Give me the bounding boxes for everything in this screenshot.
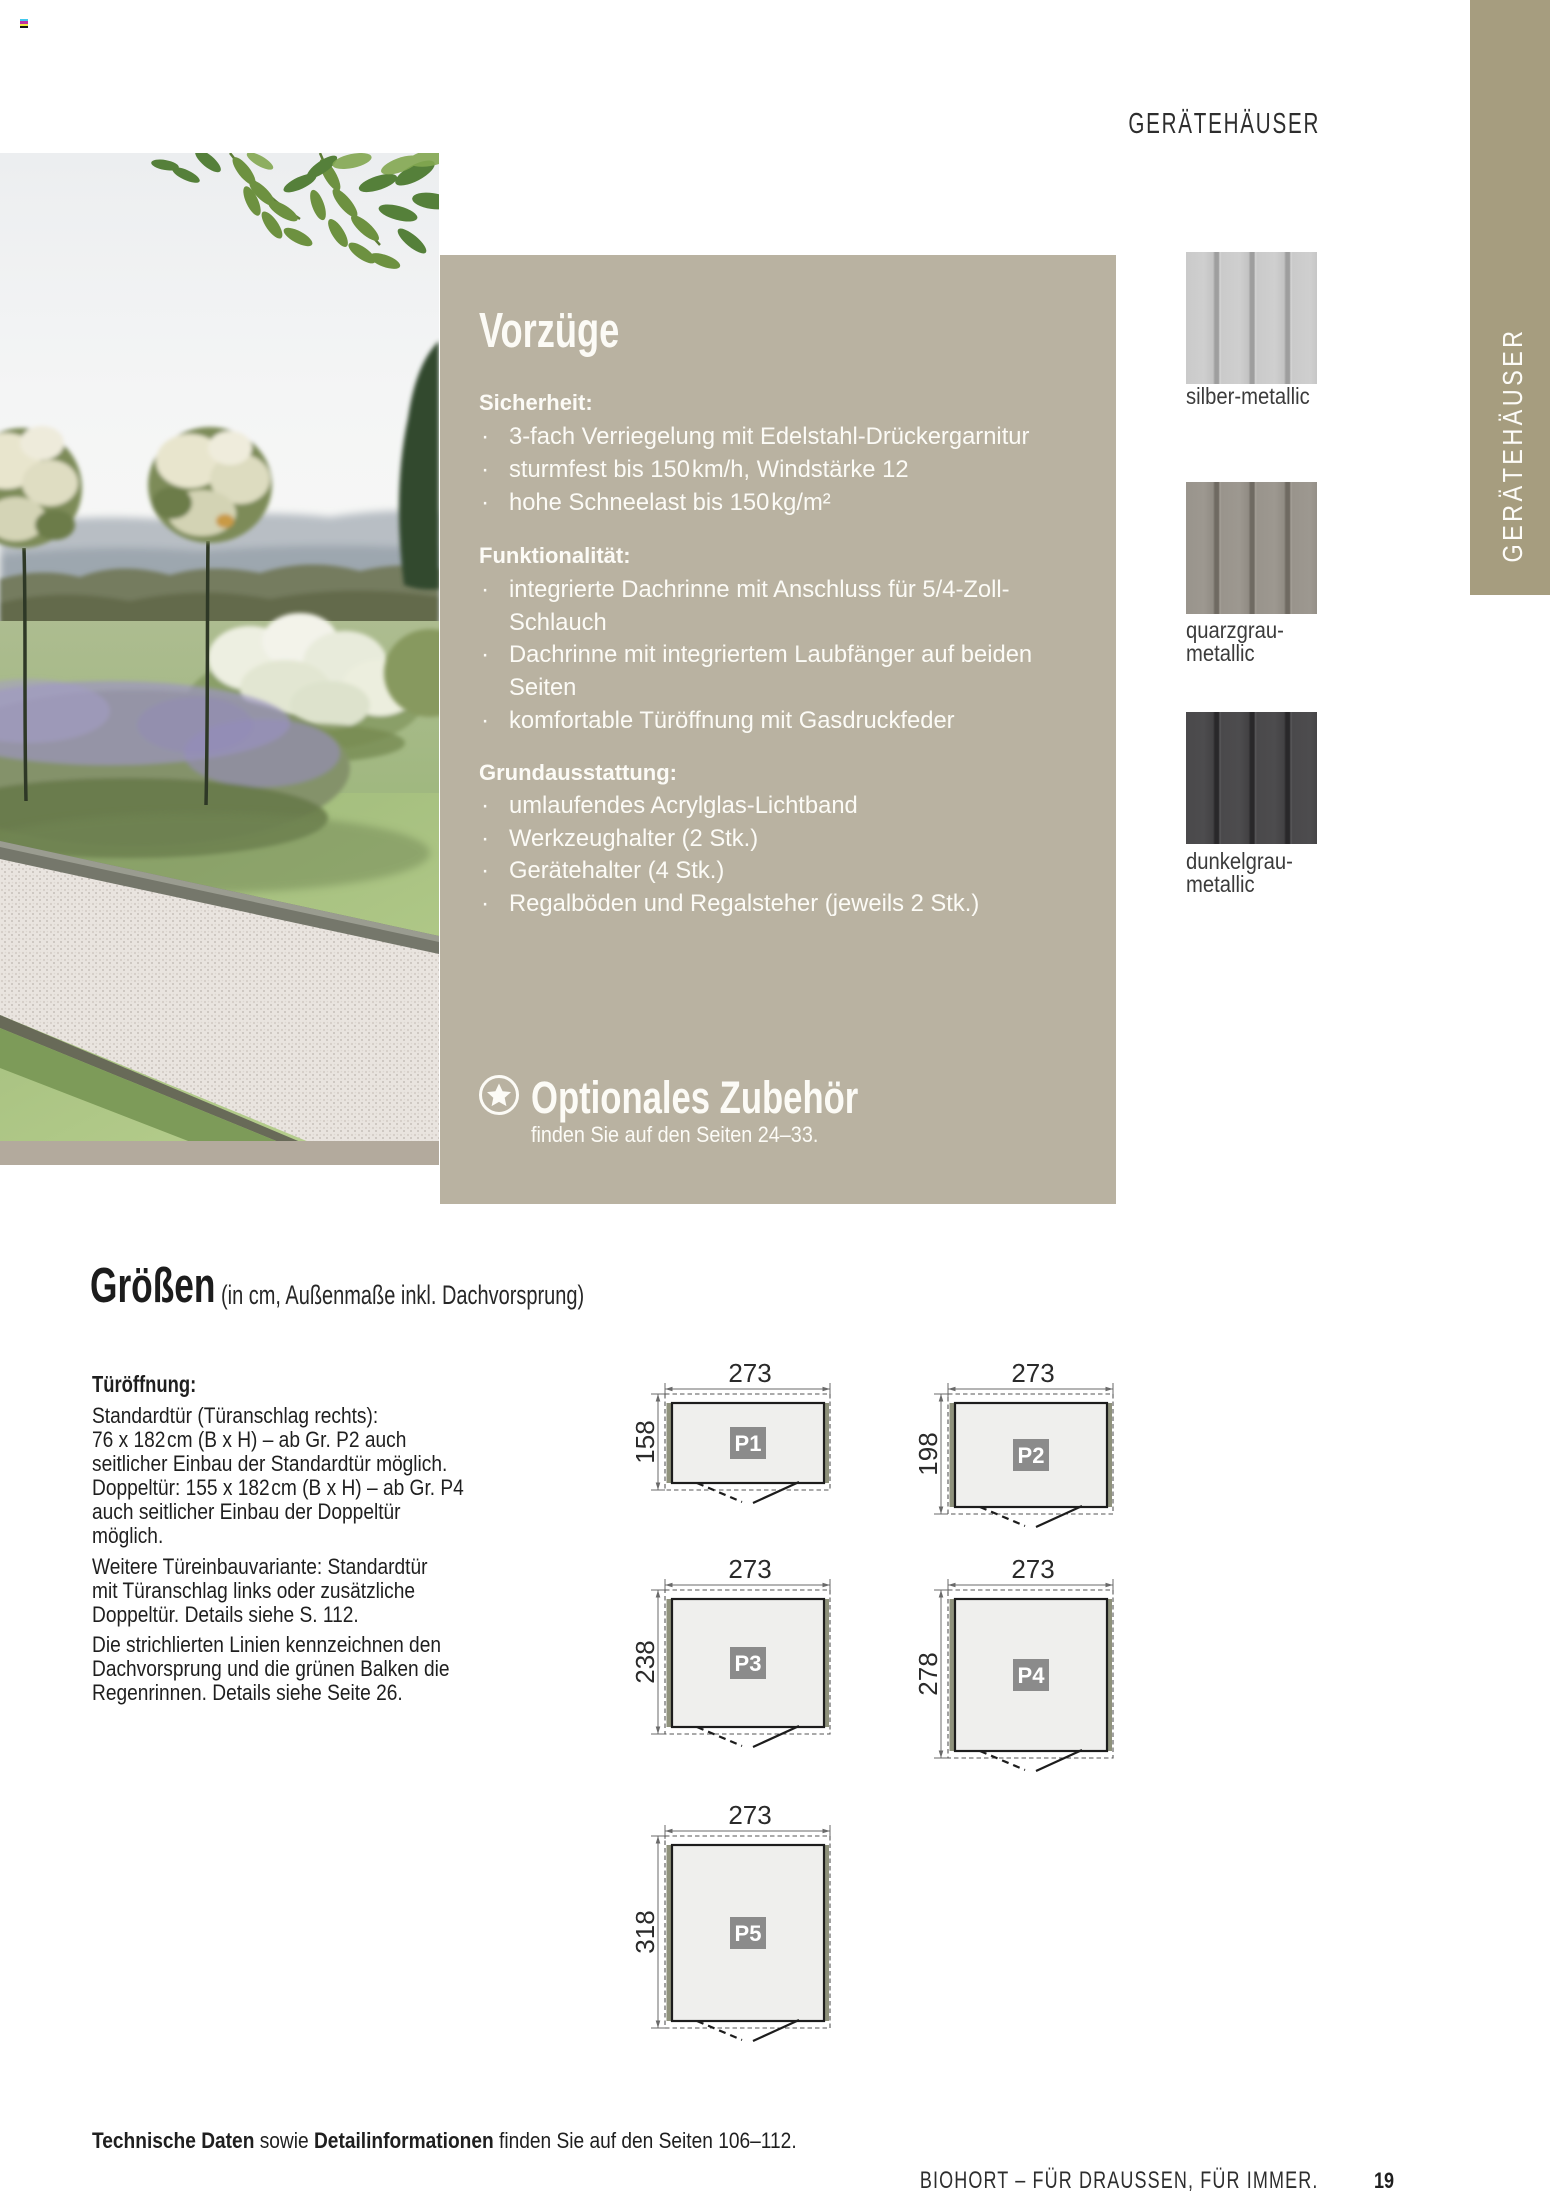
svg-text:P2: P2	[1018, 1443, 1045, 1468]
svg-text:273: 273	[1011, 1358, 1054, 1388]
svg-text:273: 273	[1011, 1554, 1054, 1584]
svg-text:P1: P1	[735, 1431, 762, 1456]
svg-text:P5: P5	[735, 1921, 762, 1946]
svg-text:238: 238	[630, 1640, 660, 1683]
svg-text:273: 273	[728, 1358, 771, 1388]
svg-text:318: 318	[630, 1910, 660, 1953]
svg-text:198: 198	[913, 1432, 943, 1475]
svg-text:278: 278	[913, 1652, 943, 1695]
svg-text:158: 158	[630, 1420, 660, 1463]
svg-text:273: 273	[728, 1554, 771, 1584]
svg-text:P4: P4	[1018, 1663, 1046, 1688]
svg-text:273: 273	[728, 1800, 771, 1830]
svg-text:P3: P3	[735, 1651, 762, 1676]
